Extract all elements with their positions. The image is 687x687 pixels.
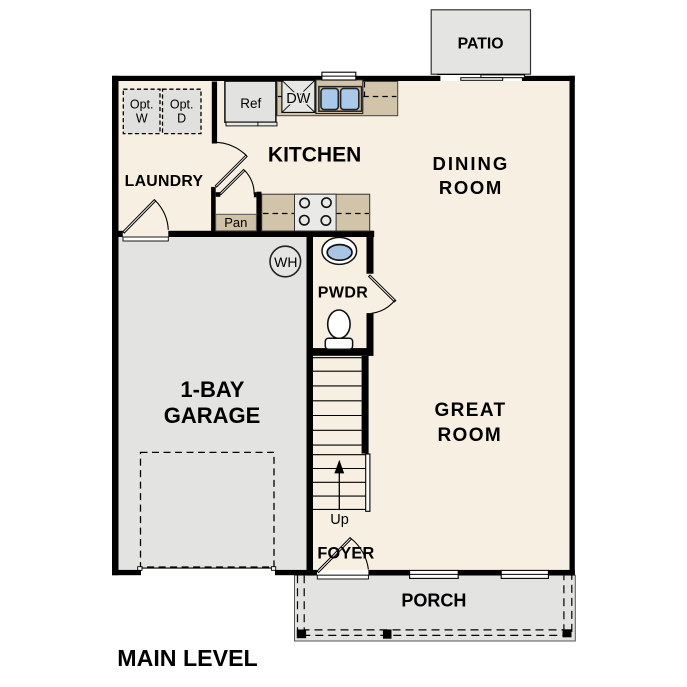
- svg-text:ROOM: ROOM: [439, 177, 503, 198]
- svg-text:PATIO: PATIO: [458, 35, 504, 52]
- svg-text:WH: WH: [274, 254, 297, 270]
- svg-text:FOYER: FOYER: [317, 545, 374, 563]
- svg-text:Pan: Pan: [224, 215, 247, 230]
- svg-text:GREAT: GREAT: [434, 400, 506, 421]
- svg-text:MAIN LEVEL: MAIN LEVEL: [117, 645, 257, 671]
- svg-text:D: D: [177, 112, 186, 126]
- svg-text:KITCHEN: KITCHEN: [268, 144, 361, 167]
- svg-text:W: W: [136, 112, 148, 126]
- svg-text:1-BAY: 1-BAY: [180, 377, 244, 402]
- svg-text:Up: Up: [330, 512, 349, 528]
- svg-text:Opt.: Opt.: [170, 98, 194, 112]
- svg-text:DW: DW: [286, 91, 310, 107]
- svg-text:Opt.: Opt.: [130, 98, 154, 112]
- svg-text:Ref: Ref: [240, 96, 261, 111]
- svg-text:GARAGE: GARAGE: [164, 403, 261, 428]
- svg-text:DINING: DINING: [433, 153, 510, 174]
- svg-text:ROOM: ROOM: [437, 425, 502, 446]
- svg-text:PWDR: PWDR: [318, 285, 369, 302]
- svg-text:PORCH: PORCH: [401, 591, 466, 611]
- svg-text:LAUNDRY: LAUNDRY: [125, 173, 204, 190]
